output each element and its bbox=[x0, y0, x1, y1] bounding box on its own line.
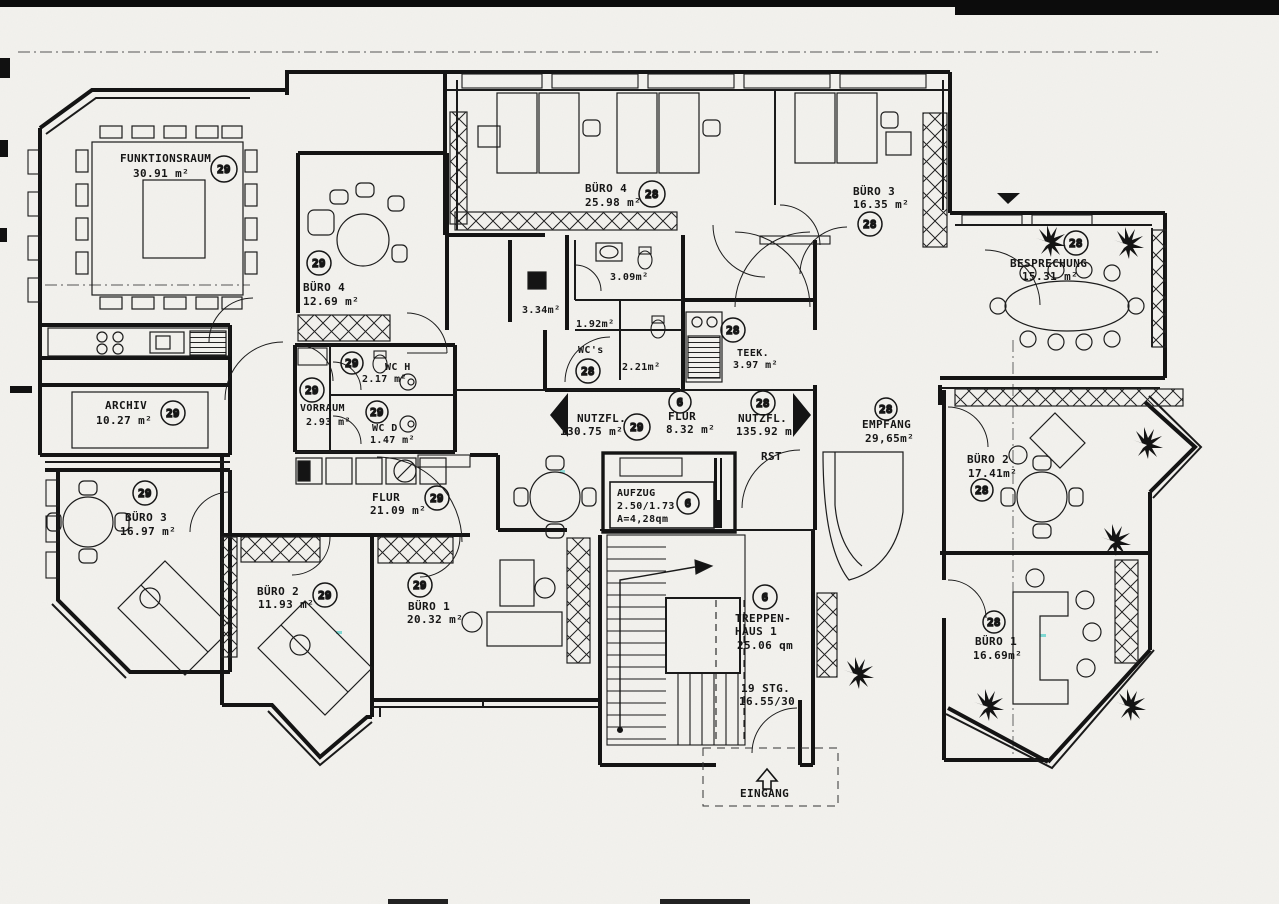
svg-text:28: 28 bbox=[987, 617, 1000, 629]
room-label-nutzfl-28: NUTZFL. bbox=[738, 412, 787, 425]
svg-text:29: 29 bbox=[370, 407, 383, 419]
room-area-flur-832: 8.32 m² bbox=[666, 423, 715, 436]
room-area-teek: 3.97 m² bbox=[733, 360, 778, 371]
stairs-label-line2: HAUS 1 bbox=[735, 625, 777, 638]
stairs-area: 25.06 qm bbox=[737, 639, 793, 652]
room-label-flur-832: FLUR bbox=[668, 410, 696, 423]
room-label-buero2-left: BÜRO 2 bbox=[257, 584, 299, 598]
room-area-buero2-right: 17.41m² bbox=[968, 467, 1017, 480]
svg-text:6: 6 bbox=[677, 397, 684, 409]
elevator-area: A=4,28qm bbox=[617, 514, 668, 525]
svg-text:28: 28 bbox=[726, 325, 739, 337]
svg-text:29: 29 bbox=[166, 408, 179, 420]
svg-text:29: 29 bbox=[345, 358, 358, 370]
room-label-buero3-top: BÜRO 3 bbox=[853, 184, 895, 198]
room-label-wc-h: WC H bbox=[385, 362, 411, 373]
room-area-archiv: 10.27 m² bbox=[96, 414, 152, 427]
svg-text:29: 29 bbox=[217, 164, 230, 176]
floor-plan-svg: FUNKTIONSRAUM 30.91 m² BÜRO 4 12.69 m² B… bbox=[0, 0, 1279, 904]
room-area-nutzfl-29: 130.75 m² bbox=[560, 425, 623, 438]
svg-text:28: 28 bbox=[863, 219, 876, 231]
svg-text:29: 29 bbox=[305, 385, 318, 397]
room-area-nutzfl-28: 135.92 m² bbox=[736, 425, 799, 438]
stairs-step-dim: 16.55/30 bbox=[739, 695, 795, 708]
svg-text:28: 28 bbox=[645, 189, 658, 201]
room-label-wc-d: WC D bbox=[372, 423, 398, 434]
room-area-wc-h: 2.17 m² bbox=[362, 374, 407, 385]
elevator-dim: 2.50/1.73 bbox=[617, 501, 675, 512]
room-label-buero4-large: BÜRO 4 bbox=[585, 181, 627, 195]
room-label-wcs: WC's bbox=[578, 345, 604, 356]
svg-text:28: 28 bbox=[879, 404, 892, 416]
svg-text:28: 28 bbox=[581, 366, 594, 378]
stairs-label-line1: TREPPEN- bbox=[735, 612, 791, 625]
room-area-buero1-right: 16.69m² bbox=[973, 649, 1022, 662]
svg-text:28: 28 bbox=[975, 485, 988, 497]
svg-text:29: 29 bbox=[318, 590, 331, 602]
room-label-besprechung: BESPRECHUNG bbox=[1010, 257, 1087, 270]
room-area-buero3-left: 16.97 m² bbox=[120, 525, 176, 538]
room-area-flur-21: 21.09 m² bbox=[370, 504, 426, 517]
room-label-buero1-left: BÜRO 1 bbox=[408, 599, 450, 613]
room-label-flur-21: FLUR bbox=[372, 491, 400, 504]
room-label-buero2-right: BÜRO 2 bbox=[967, 452, 1009, 466]
stairs-steps: 19 STG. bbox=[741, 682, 790, 695]
room-area-wc-d: 1.47 m² bbox=[370, 435, 415, 446]
eingang-label: EINGANG bbox=[740, 787, 789, 800]
room-label-vorraum: VORRAUM bbox=[300, 403, 345, 414]
room-area-buero1-left: 20.32 m² bbox=[407, 613, 463, 626]
room-label-buero1-right: BÜRO 1 bbox=[975, 634, 1017, 648]
svg-text:29: 29 bbox=[413, 580, 426, 592]
area-309: 3.09m² bbox=[610, 272, 649, 283]
svg-text:29: 29 bbox=[630, 422, 643, 434]
elevator-label: AUFZUG bbox=[617, 488, 656, 499]
room-area-empfang: 29,65m² bbox=[865, 432, 914, 445]
svg-text:28: 28 bbox=[756, 398, 769, 410]
area-192: 1.92m² bbox=[576, 319, 615, 330]
room-label-buero4-small: BÜRO 4 bbox=[303, 280, 345, 294]
room-area-buero4-small: 12.69 m² bbox=[303, 295, 359, 308]
room-area-buero2-left: 11.93 m² bbox=[258, 598, 314, 611]
area-221: 2.21m² bbox=[622, 362, 661, 373]
svg-text:6: 6 bbox=[762, 592, 769, 604]
room-label-archiv: ARCHIV bbox=[105, 399, 147, 412]
scanned-floor-plan-page: FUNKTIONSRAUM 30.91 m² BÜRO 4 12.69 m² B… bbox=[0, 0, 1279, 904]
rst-label: RST bbox=[761, 450, 782, 463]
svg-text:28: 28 bbox=[1069, 238, 1082, 250]
svg-text:29: 29 bbox=[430, 493, 443, 505]
svg-text:6: 6 bbox=[685, 498, 692, 510]
room-area-buero3-top: 16.35 m² bbox=[853, 198, 909, 211]
room-area-buero4-large: 25.98 m² bbox=[585, 196, 641, 209]
room-area-vorraum: 2.93 m² bbox=[306, 417, 351, 428]
room-label-teek: TEEK. bbox=[737, 348, 769, 359]
room-label-buero3-left: BÜRO 3 bbox=[125, 510, 167, 524]
room-area-funktionsraum: 30.91 m² bbox=[133, 167, 189, 180]
svg-text:29: 29 bbox=[312, 258, 325, 270]
svg-text:29: 29 bbox=[138, 488, 151, 500]
room-label-nutzfl-29: NUTZFL. bbox=[577, 412, 626, 425]
area-334: 3.34m² bbox=[522, 305, 561, 316]
room-area-besprechung: 15.31 m² bbox=[1022, 270, 1078, 283]
room-label-funktionsraum: FUNKTIONSRAUM bbox=[120, 152, 211, 165]
